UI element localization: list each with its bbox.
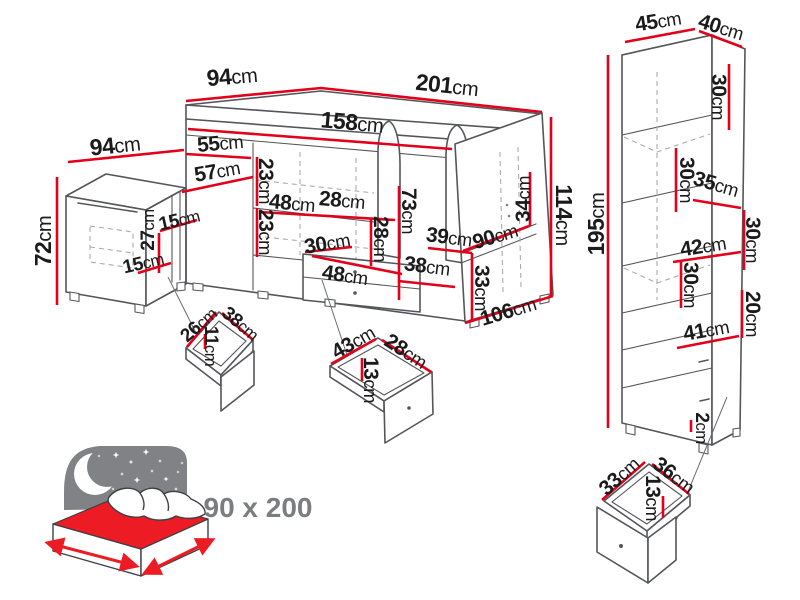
dim-cabinet-sec5: 20cm — [741, 291, 764, 337]
dim-opening-height: 28cm — [369, 216, 392, 262]
bed-end-panel — [455, 113, 553, 322]
dim-drawer-b-height: 13cm — [359, 357, 382, 403]
dim-bed-height: 114cm — [551, 184, 577, 246]
dim-gap-height: 27cm — [138, 209, 159, 250]
dim-bed-inner-length: 158cm — [320, 106, 385, 137]
dim-bed-length: 201cm — [414, 69, 479, 101]
dim-cubby-height-lower: 23cm — [254, 209, 277, 255]
dim-desk-width: 94cm — [88, 129, 141, 160]
dim-drawer-width: 30cm — [302, 228, 351, 259]
dim-cabinet-sec3: 30cm — [741, 217, 764, 263]
dim-under-bunk-height: 73cm — [397, 188, 420, 234]
dim-cabinet-sec1: 30cm — [707, 74, 730, 120]
bed-size-icon: 90 x 200 — [48, 446, 313, 600]
dim-rail-height: 34cm — [512, 176, 535, 222]
bed-size-label: 90 x 200 — [204, 492, 313, 523]
furniture-dimension-diagram: 94cm 201cm 158cm 55cm 57cm 23cm 48cm 28c… — [0, 0, 800, 600]
dim-drawer-a-height: 11cm — [200, 326, 221, 366]
desk-drawing — [66, 174, 186, 314]
dim-desk-height: 72cm — [30, 216, 56, 267]
dim-cabinet-sec4: 30cm — [679, 262, 702, 308]
dim-bed-depth: 94cm — [206, 61, 259, 91]
dim-left-top-width: 55cm — [196, 130, 244, 157]
dim-cubby-width-right: 28cm — [318, 187, 366, 214]
dim-cabinet-height: 195cm — [583, 193, 609, 256]
dim-drawer-c-height: 13cm — [641, 475, 664, 521]
dim-cabinet-plinth: 2cm — [691, 412, 712, 443]
